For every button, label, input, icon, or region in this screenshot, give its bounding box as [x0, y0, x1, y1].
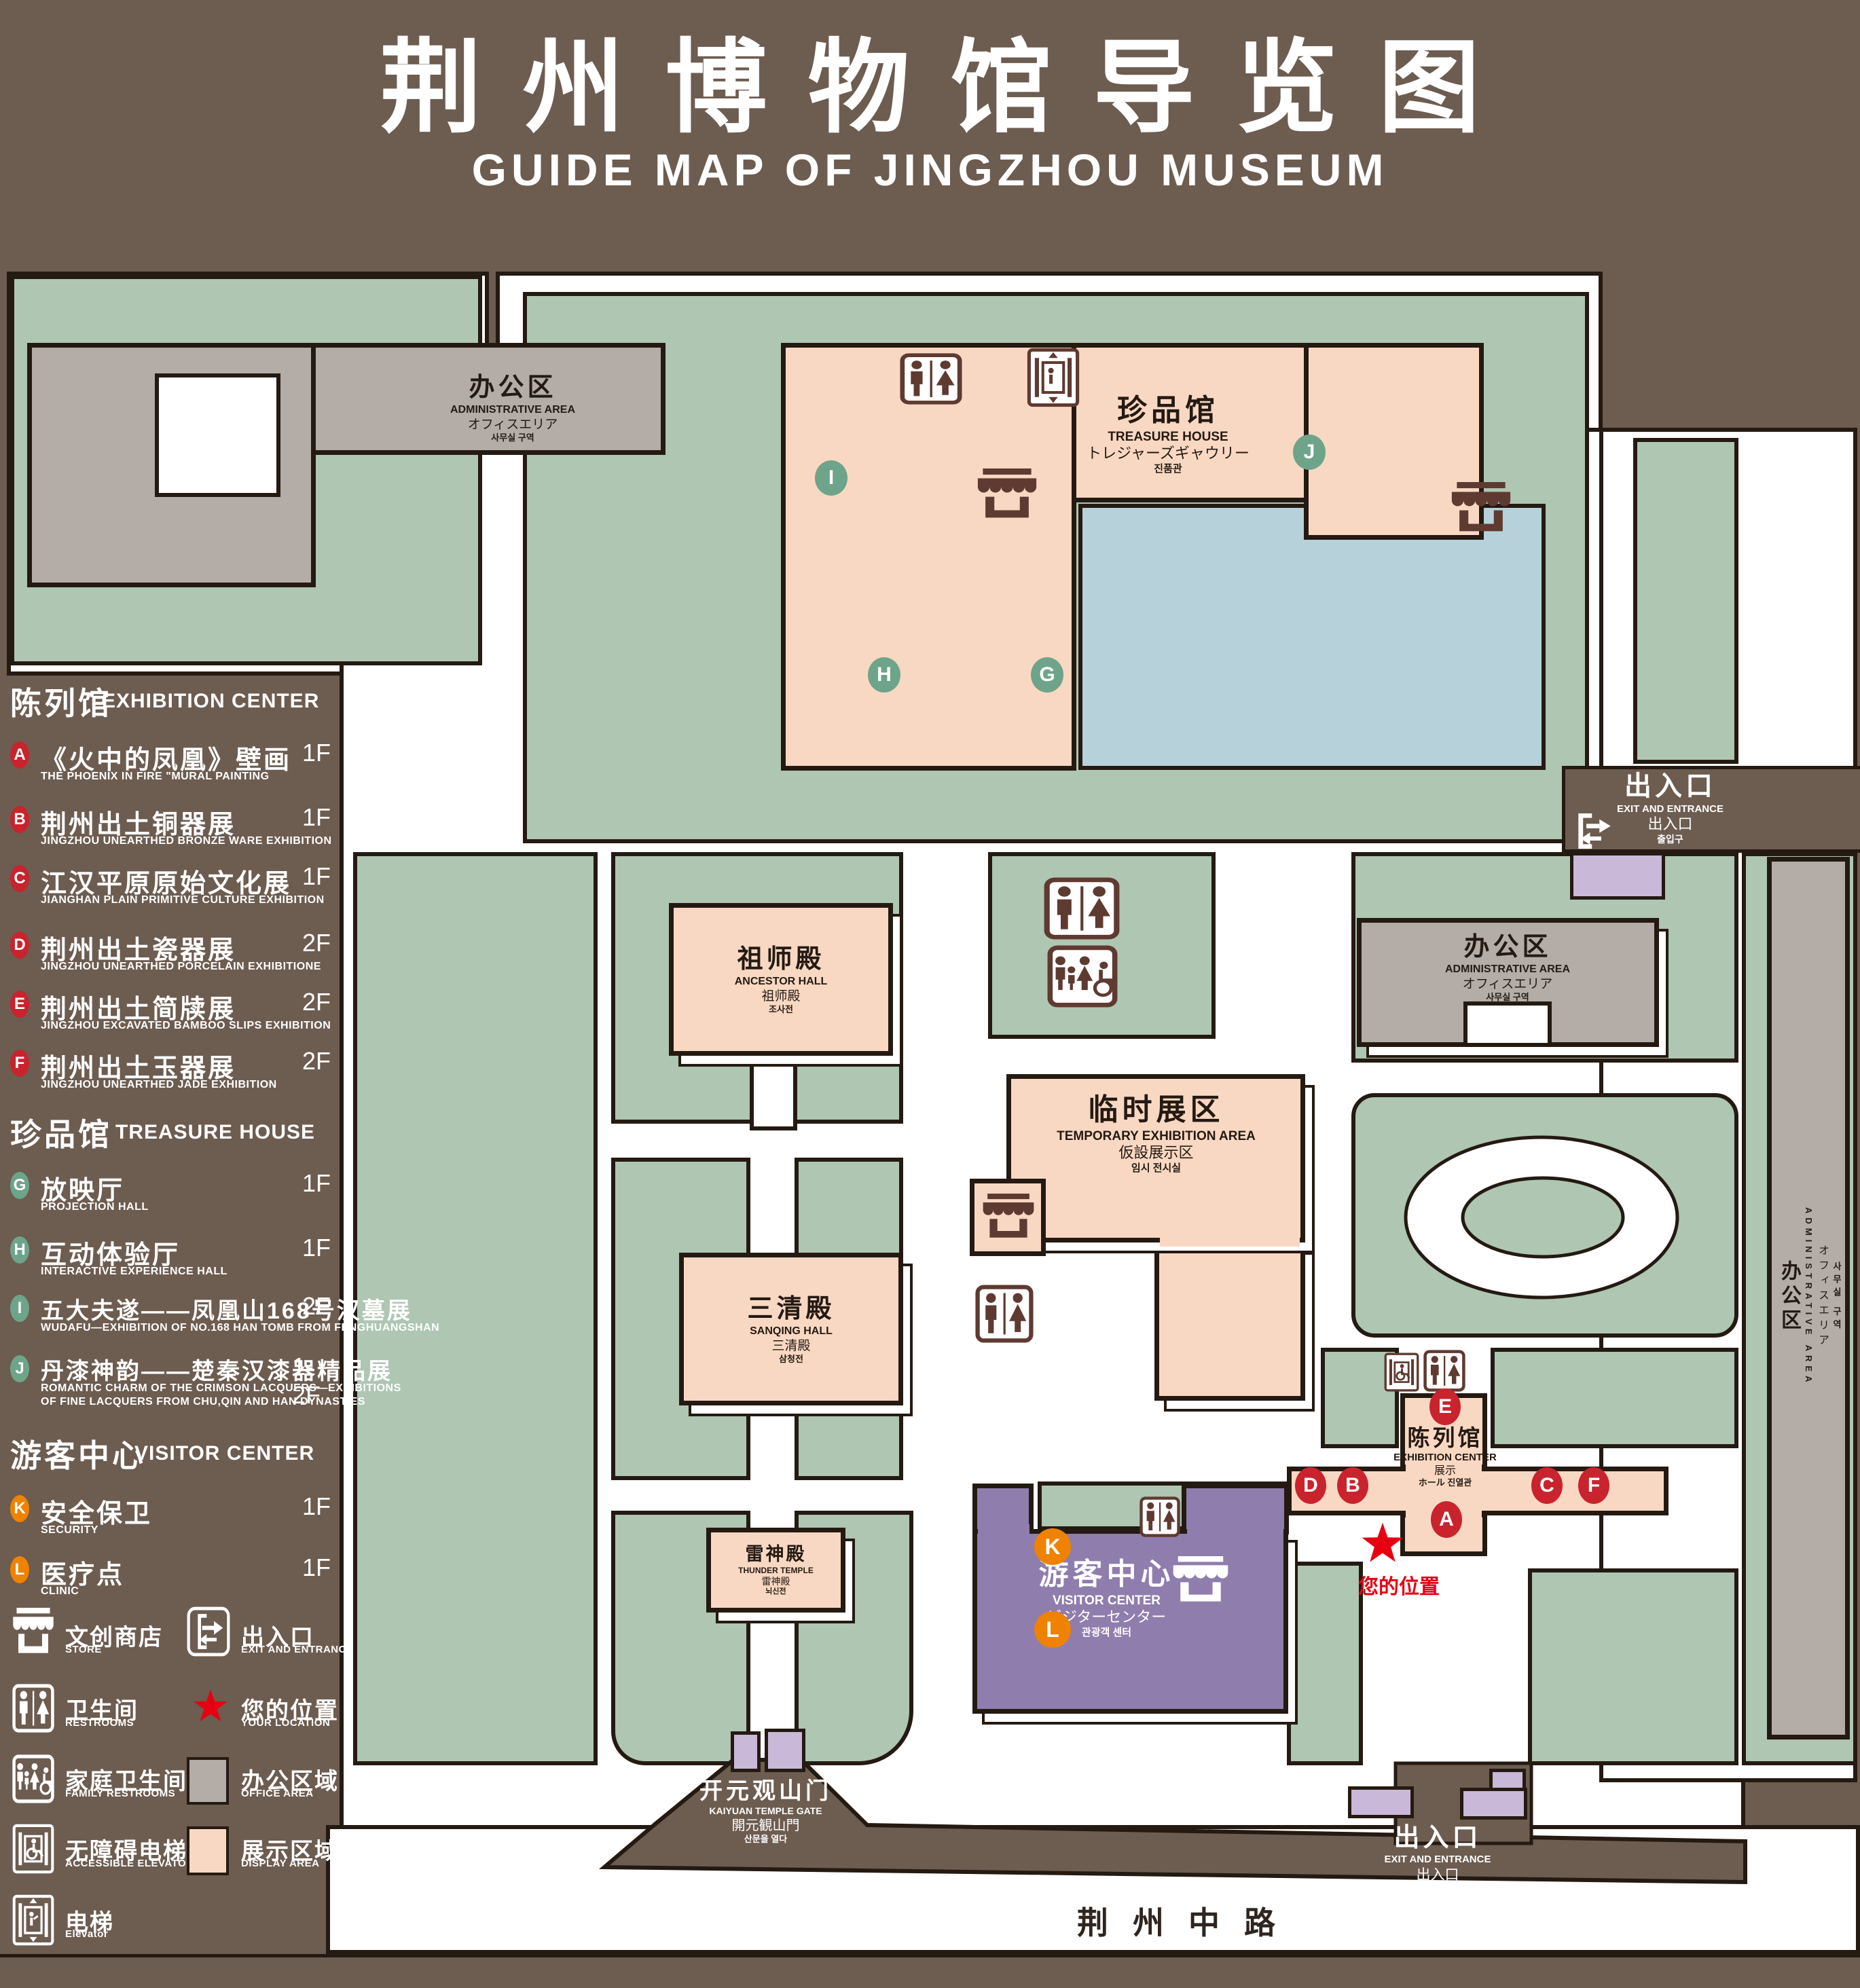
store-icon: [977, 468, 1038, 520]
legend-badge-J: J: [10, 1355, 29, 1382]
legend-item-floor: 2F: [302, 1292, 331, 1321]
entrance-building: [1570, 852, 1665, 900]
restroom-icon: [975, 1285, 1034, 1343]
store-icon: [1451, 482, 1512, 534]
legend-item-sublabel: JINGZHOU UNEARTHED JADE EXHIBITION: [41, 1079, 277, 1091]
store-icon: [982, 1194, 1035, 1240]
water-pond: [1078, 504, 1546, 770]
badge-J: J: [1293, 435, 1326, 470]
label-thunder-temple: 雷神殿 THUNDER TEMPLE 雷神殿 뇌신전: [738, 1543, 814, 1596]
label-admin-middle: 办公区 ADMINISTRATIVE AREA オフィスエリア 사무실 구역: [1358, 932, 1657, 1003]
office-area-swatch: [187, 1757, 229, 1805]
badge-K: K: [1034, 1528, 1071, 1565]
label-admin-northwest: 办公区 ADMINISTRATIVE AREA オフィスエリア 사무실 구역: [370, 372, 655, 443]
badge-A: A: [1431, 1501, 1462, 1538]
entrance-building: [1460, 1788, 1527, 1820]
building-temporary-exhibition: [1154, 1241, 1305, 1401]
entrance-building: [731, 1731, 761, 1772]
badge-H: H: [868, 657, 900, 693]
building-sanqing-hall: 三清殿 SANQING HALL 三清殿 삼청전: [679, 1253, 903, 1405]
road-strip: [0, 1954, 1860, 1988]
accessible-elevator-icon: [1384, 1352, 1419, 1392]
legend-item-floor: 2F: [302, 1047, 331, 1075]
your-location-star-icon: [192, 1688, 230, 1723]
courtyard: [155, 373, 280, 497]
legend-badge-L: L: [10, 1556, 29, 1583]
family-restroom-icon: [1047, 945, 1118, 1008]
legend-item-floor: 1F: [302, 803, 331, 832]
exit-icon: [187, 1606, 230, 1657]
road-label: 荆州中路: [971, 1898, 1406, 1943]
label-exit-northeast: 出入口 EXIT AND ENTRANCE 出入口 출입구: [1597, 770, 1743, 845]
legend-item-sublabel: PROJECTION HALL: [41, 1201, 149, 1213]
legend-section-title-en: VISITOR CENTER: [134, 1442, 314, 1465]
symbol-sublabel: FAMILY RESTROOMS: [65, 1788, 175, 1799]
legend-item-sublabel: ROMANTIC CHARM OF THE CRIMSON LACQUERS—E…: [41, 1382, 401, 1395]
legend-item-sublabel: CLINIC: [41, 1585, 79, 1598]
your-location-star-icon: [1360, 1521, 1406, 1564]
symbol-sublabel: OFFICE AREA: [241, 1788, 314, 1799]
legend-section-title-en: TREASURE HOUSE: [115, 1121, 315, 1144]
legend-item-floor: 1F: [302, 1492, 331, 1521]
badge-L: L: [1034, 1611, 1071, 1648]
store-icon: [12, 1608, 54, 1655]
legend-item-floor: 1F: [302, 1553, 331, 1582]
legend-badge-K: K: [10, 1495, 29, 1522]
entrance-building: [1348, 1786, 1414, 1818]
legend-badge-A: A: [10, 741, 29, 769]
legend-badge-E: E: [10, 991, 29, 1018]
legend-item-sublabel: JINGZHOU UNEARTHED PORCELAIN EXHIBITIONE: [41, 961, 321, 973]
label-ancestor-hall: 祖师殿 ANCESTOR HALL 祖师殿 조사전: [735, 944, 828, 1015]
legend-badge-F: F: [10, 1050, 29, 1077]
legend-badge-C: C: [10, 865, 29, 892]
legend-badge-H: H: [10, 1236, 29, 1264]
legend-item-label: 五大夫遂——凤凰山168号汉墓展: [41, 1292, 412, 1325]
badge-E: E: [1429, 1388, 1461, 1425]
badge-B: B: [1337, 1467, 1368, 1504]
courtyard: [1463, 1001, 1552, 1047]
family-restroom-icon: [12, 1754, 54, 1803]
legend-item-label: 丹漆神韵——楚秦汉漆器精品展: [41, 1352, 393, 1386]
legend-item-floor: 1F: [302, 739, 331, 767]
legend-item-sublabel: JINGZHOU UNEARTHED BRONZE WARE EXHIBITIO…: [41, 835, 332, 847]
legend-item-floor: 1F: [302, 1169, 331, 1198]
elevator-icon: [1027, 348, 1080, 407]
legend-item-sublabel: JIANGHAN PLAIN PRIMITIVE CULTURE EXHIBIT…: [41, 894, 325, 906]
accessible-elevator-icon: [12, 1824, 54, 1874]
restroom-icon: [900, 353, 962, 405]
legend-badge-G: G: [10, 1172, 29, 1199]
restroom-icon: [1139, 1496, 1180, 1537]
legend-section-title-en: EXHIBITION CENTER: [102, 690, 319, 713]
badge-G: G: [1031, 657, 1063, 693]
restroom-icon: [1423, 1350, 1465, 1392]
legend-badge-D: D: [10, 932, 29, 959]
symbol-sublabel: Elevator: [65, 1928, 108, 1940]
legend-item-floor: 2F: [302, 988, 331, 1016]
building-ancestor-hall: 祖师殿 ANCESTOR HALL 祖师殿 조사전: [669, 903, 893, 1056]
legend-item-floor: 1F: [302, 862, 331, 891]
legend-item-floor: 2F: [302, 929, 331, 957]
legend-item-sublabel: INTERACTIVE EXPERIENCE HALL: [41, 1266, 227, 1278]
badge-D: D: [1295, 1467, 1326, 1504]
legend-item-floor: 1-2F: [292, 1352, 321, 1410]
label-exit-south: 出入口 EXIT AND ENTRANCE 出入口 출입구: [1366, 1822, 1509, 1895]
label-sanqing-hall: 三清殿 SANQING HALL 三清殿 삼청전: [747, 1293, 835, 1365]
badge-C: C: [1531, 1467, 1563, 1504]
building-thunder-temple: 雷神殿 THUNDER TEMPLE 雷神殿 뇌신전: [706, 1528, 845, 1613]
entrance-building: [765, 1729, 805, 1772]
your-location-label: 您的位置: [1328, 1570, 1470, 1600]
legend-badge-B: B: [10, 806, 29, 833]
legend-item-sublabel: JINGZHOU EXCAVATED BAMBOO SLIPS EXHIBITI…: [41, 1020, 331, 1032]
symbol-sublabel: ACCESSIBLE ELEVATOR: [65, 1858, 194, 1869]
museum-map: 珍品馆 TREASURE HOUSE トレジャーズギャウリー 진품관 办公区 A…: [0, 0, 1860, 1988]
legend-item-sublabel: THE PHOENIX IN FIRE "MURAL PAINTING: [41, 771, 270, 783]
garden-island: [1463, 1178, 1623, 1257]
elevator-icon: [12, 1894, 54, 1946]
restroom-icon: [1044, 877, 1120, 940]
display-area-swatch: [187, 1826, 229, 1875]
exit-icon: [1571, 809, 1616, 853]
symbol-sublabel: STORE: [65, 1644, 102, 1655]
symbol-sublabel: DISPLAY AREA: [241, 1858, 319, 1869]
symbol-sublabel: RESTROOMS: [65, 1717, 134, 1729]
restroom-icon: [12, 1684, 54, 1733]
symbol-sublabel: EXIT AND ENTRANCE: [241, 1644, 353, 1655]
symbol-sublabel: YOUR LOCATION: [241, 1717, 330, 1729]
legend-section-title: 陈列馆: [10, 679, 112, 724]
guide-map-poster: { "title": {"cn": "荆州博物馆导览图", "en": "GUI…: [0, 0, 1860, 1988]
legend-item-floor: 1F: [302, 1234, 331, 1262]
legend-section-title: 珍品馆: [10, 1110, 112, 1155]
label-exhibition-center: 陈列馆 EXHIBITION CENTER 展示 ホール 진열관: [1357, 1424, 1533, 1488]
store-icon: [1172, 1556, 1229, 1604]
badge-I: I: [815, 460, 847, 496]
legend-item-sublabel: SECURITY: [41, 1524, 98, 1536]
badge-F: F: [1578, 1467, 1609, 1504]
legend-section-title: 游客中心: [10, 1431, 146, 1476]
legend-item-sublabel: WUDAFU—EXHIBITION OF NO.168 HAN TOMB FRO…: [41, 1322, 439, 1334]
label-admin-east: 사무실 구역 オフィスエリア ADMINISTRATIVE AREA 办公区: [1767, 1059, 1850, 1534]
label-temporary-exhibition: 临时展区 TEMPORARY EXHIBITION AREA 仮設展示区 임시 …: [1012, 1092, 1300, 1175]
label-kaiyuan-gate: 开元观山门 KAIYUAN TEMPLE GATE 開元観山門 산문을 열다: [669, 1778, 862, 1845]
legend-badge-I: I: [10, 1295, 29, 1322]
